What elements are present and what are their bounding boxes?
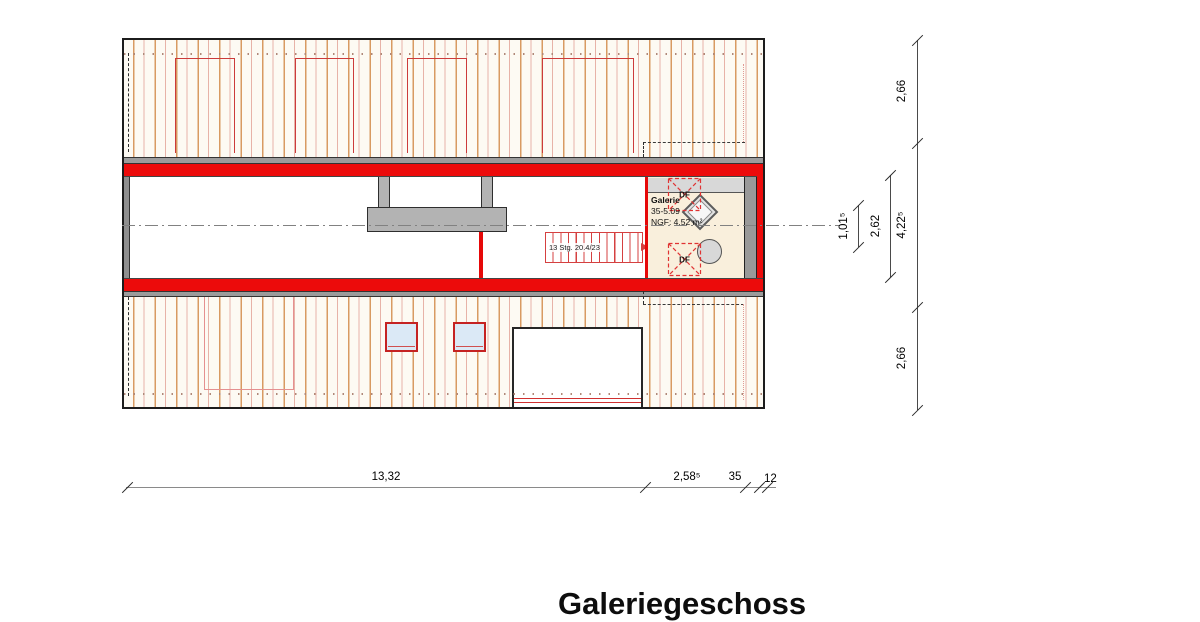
roof-window-marker-bottom: DF — [667, 242, 702, 277]
knee-wall-top — [124, 164, 763, 177]
gallery-projection-dashed-bottom-v — [643, 291, 644, 304]
roof-opening — [512, 327, 643, 407]
roof-opening-red-line-2 — [514, 402, 641, 403]
floor-plan: 13 Stg. 20.4/23 DF DF Galerie 35-5.09 NG… — [122, 38, 765, 409]
dimension-label-room-width: 2,62 — [869, 191, 883, 261]
gallery-projection-dashed-top — [643, 142, 745, 143]
dormer-outline-4 — [542, 58, 634, 153]
skylight-window-1 — [385, 322, 418, 352]
gallery-projection-dashed-top-v — [643, 142, 644, 157]
dimension-line-bottom — [126, 487, 776, 488]
dimension-label-roof-top: 2,66 — [895, 56, 909, 126]
gallery-projection-dotted-bottom — [743, 304, 744, 400]
knee-wall-bottom — [124, 278, 763, 291]
stairwell-enclosure-post-left — [378, 177, 390, 209]
room-name: Galerie — [651, 195, 702, 206]
dimension-line-right-inner — [858, 205, 859, 247]
dimension-label-roof-bottom: 2,66 — [895, 323, 909, 393]
room-label-block: Galerie 35-5.09 NGF: 4,52 m² — [651, 195, 702, 228]
dormer-outline-bottom — [204, 297, 294, 390]
roof-opening-red-line-1 — [514, 398, 641, 399]
skylight-sill-line — [456, 346, 483, 347]
skylight-window-2 — [453, 322, 486, 352]
dimension-line-right-outer — [917, 40, 918, 410]
gallery-projection-dashed-bottom — [643, 304, 744, 305]
eaves-dotted-line-bottom — [124, 393, 763, 395]
gable-wall-left — [124, 177, 130, 278]
gallery-side-wall — [744, 177, 757, 278]
section-centerline — [122, 225, 840, 226]
stair-wall-red — [479, 232, 483, 278]
dormer-outline-2 — [295, 58, 354, 153]
dimension-label-gallery: 2,58⁵ — [657, 471, 717, 483]
dimension-label-inner: 1,01⁵ — [837, 191, 851, 261]
dormer-outline-3 — [407, 58, 467, 153]
dimension-line-right-room — [890, 175, 891, 277]
dimension-label-middle: 4,22⁵ — [895, 190, 909, 260]
roof-edge-dashed-line-bottom — [128, 297, 129, 396]
dimension-label-edge: 12 — [764, 473, 777, 485]
stairwell-enclosure-post-right — [481, 177, 493, 209]
roof-window-label-bottom: DF — [679, 255, 690, 264]
eaves-dotted-line-top — [124, 53, 763, 55]
skylight-sill-line — [388, 346, 415, 347]
dormer-outline-1 — [175, 58, 235, 153]
eaves-wall-top — [124, 157, 763, 164]
gallery-projection-dotted-top — [743, 64, 744, 142]
drawing-title: Galeriegeschoss — [558, 586, 803, 622]
stair-run: 13 Stg. 20.4/23 — [545, 232, 643, 263]
stairwell-enclosure-beam — [367, 207, 507, 232]
dimension-label-wall: 35 — [722, 471, 748, 483]
stair-label: 13 Stg. 20.4/23 — [548, 243, 601, 252]
room-number: 35-5.09 — [651, 206, 702, 217]
gable-wall-right-red — [757, 164, 763, 291]
dimension-label-overall: 13,32 — [356, 471, 416, 483]
roof-edge-dashed-line-top — [128, 53, 129, 152]
